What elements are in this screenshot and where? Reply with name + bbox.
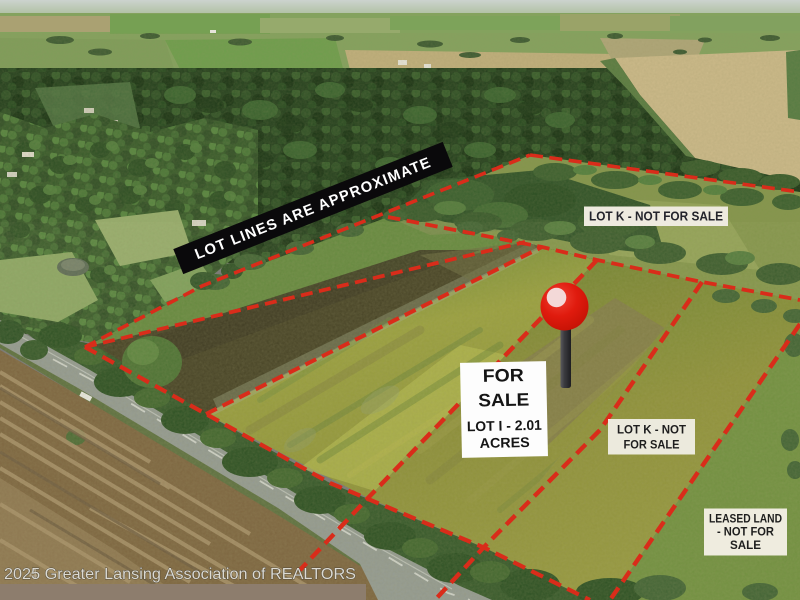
- svg-text:ACRES: ACRES: [480, 434, 530, 451]
- svg-text:4: 4: [29, 566, 38, 583]
- svg-text:SALE: SALE: [478, 389, 529, 410]
- svg-text:LEASED LAND: LEASED LAND: [709, 514, 782, 526]
- svg-text:LOT I - 2.01: LOT I - 2.01: [467, 417, 543, 435]
- svg-text:SALE: SALE: [730, 540, 761, 552]
- svg-text:FOR: FOR: [483, 365, 524, 386]
- svg-text:LOT K - NOT: LOT K - NOT: [617, 423, 687, 437]
- svg-text:LOT K - NOT FOR SALE: LOT K - NOT FOR SALE: [589, 210, 723, 224]
- svg-text:2025 Greater Lansing Associati: 2025 Greater Lansing Association of REAL…: [4, 566, 356, 583]
- svg-text:- NOT FOR: - NOT FOR: [717, 527, 775, 539]
- svg-text:FOR SALE: FOR SALE: [624, 438, 680, 452]
